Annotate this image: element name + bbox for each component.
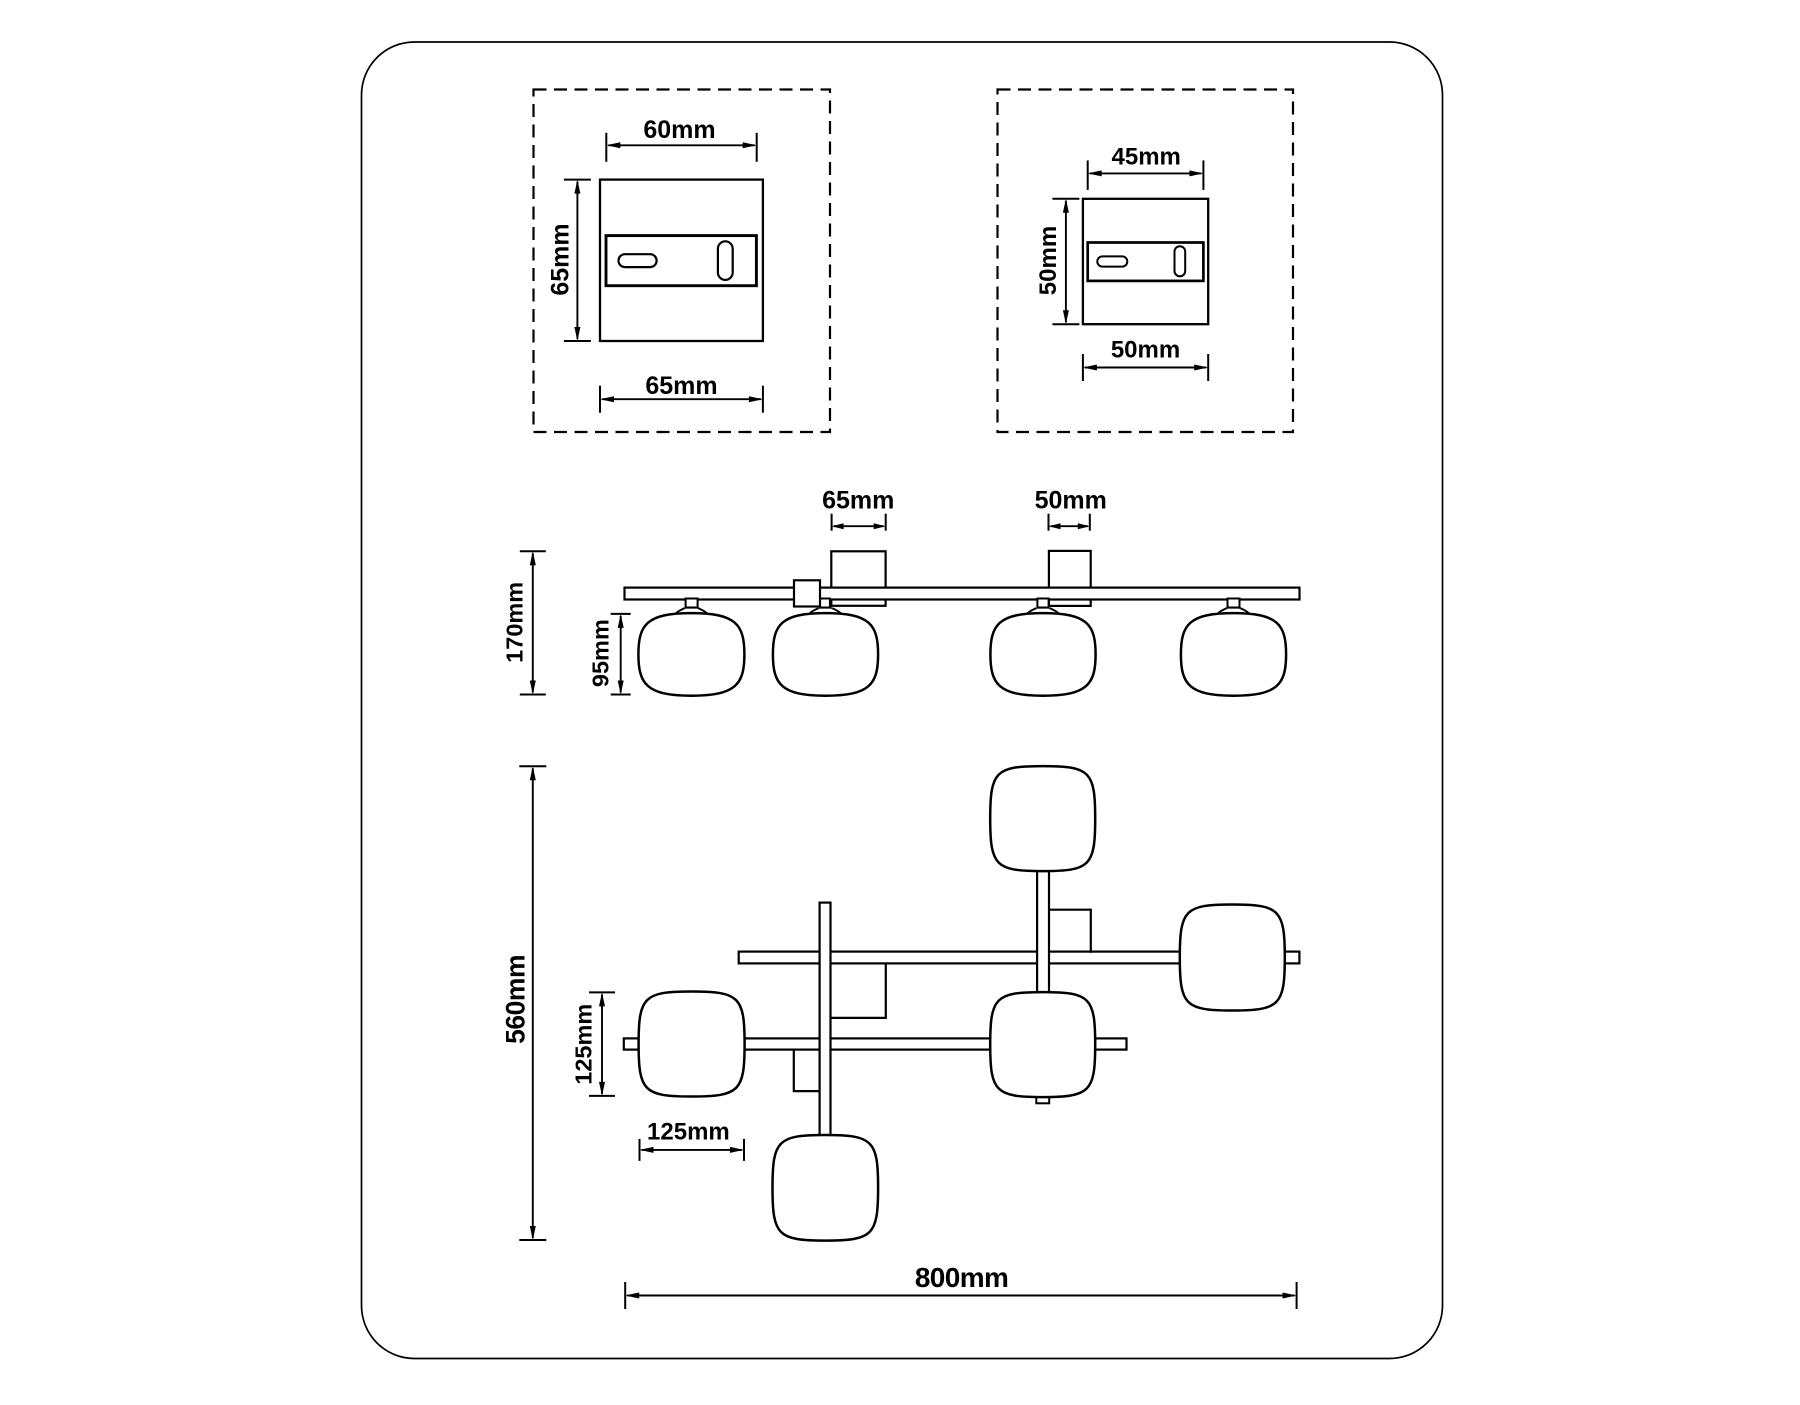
svg-text:125mm: 125mm <box>647 1119 730 1146</box>
svg-text:45mm: 45mm <box>1112 144 1181 171</box>
svg-text:65mm: 65mm <box>547 223 575 295</box>
svg-text:800mm: 800mm <box>915 1262 1009 1293</box>
svg-text:65mm: 65mm <box>645 372 717 400</box>
svg-text:50mm: 50mm <box>1035 226 1062 295</box>
svg-text:95mm: 95mm <box>588 619 614 687</box>
svg-text:65mm: 65mm <box>822 486 894 514</box>
svg-text:60mm: 60mm <box>643 116 715 144</box>
svg-text:560mm: 560mm <box>501 955 531 1044</box>
svg-text:50mm: 50mm <box>1035 486 1107 514</box>
svg-text:50mm: 50mm <box>1111 337 1180 364</box>
svg-text:170mm: 170mm <box>502 582 528 663</box>
svg-text:125mm: 125mm <box>570 1004 596 1085</box>
